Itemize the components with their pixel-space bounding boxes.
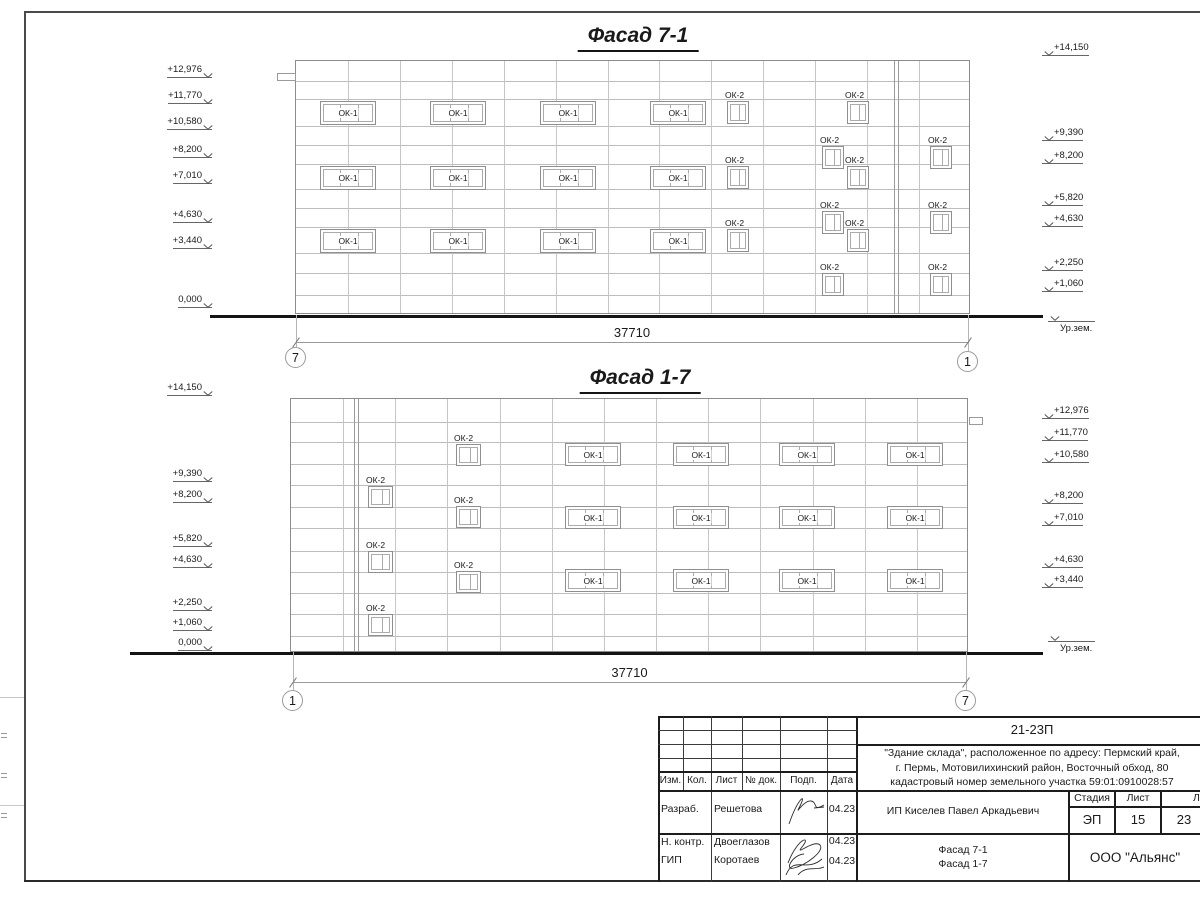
window-ok1: ОК-1	[779, 443, 835, 466]
elevation-mark: +8,200	[1042, 485, 1083, 504]
level-tick	[1044, 582, 1053, 589]
pane-divider	[382, 555, 383, 569]
sheet-name: Фасад 7-1 Фасад 1-7	[858, 843, 1068, 881]
elevation-mark: +8,200	[173, 484, 212, 503]
level-tick	[203, 497, 212, 504]
margin-divider	[0, 697, 24, 698]
window-label: ОК-2	[845, 218, 864, 228]
window-label: ОК-2	[725, 155, 744, 165]
elevation-mark: +9,390	[1042, 122, 1083, 141]
panel-joint-h	[296, 145, 969, 146]
window-ok2: ОК-2	[727, 229, 749, 252]
window-label: ОК-2	[845, 155, 864, 165]
level-tick	[203, 302, 212, 309]
elevation-mark: +3,440	[1042, 569, 1083, 588]
parapet-tab	[277, 73, 296, 81]
level-tick-stroke	[1048, 583, 1053, 588]
margin-mark	[1, 813, 7, 814]
window-ok2: ОК-2	[368, 551, 393, 573]
window-label: ОК-2	[820, 200, 839, 210]
elevation-mark: +7,010	[173, 165, 212, 184]
elevation-mark: +10,580	[1042, 444, 1089, 463]
signer-name: Решетова	[714, 803, 778, 819]
level-tick	[1044, 413, 1053, 420]
level-tick-stroke	[1048, 436, 1053, 441]
window-label: ОК-1	[557, 236, 578, 246]
ground-level-label: Ур.зем.	[1048, 318, 1095, 336]
window-ok1: ОК-1	[430, 101, 486, 125]
panel-joint-h	[296, 253, 969, 254]
level-tick-stroke	[207, 477, 212, 482]
level-tick-stroke	[1054, 636, 1059, 641]
panel-joint-h	[296, 126, 969, 127]
window-label: ОК-1	[690, 513, 711, 523]
window-ok1: ОК-1	[673, 443, 729, 466]
level-tick-stroke	[1048, 266, 1053, 271]
level-tick-stroke	[1048, 499, 1053, 504]
level-tick	[203, 72, 212, 79]
window-ok1: ОК-1	[540, 229, 596, 253]
window-label: ОК-1	[557, 108, 578, 118]
level-tick	[203, 98, 212, 105]
window-ok1: ОК-1	[565, 506, 621, 529]
level-tick	[1044, 498, 1053, 505]
col-data: Дата	[827, 772, 857, 790]
axis-leader	[968, 315, 969, 351]
pane-divider	[834, 215, 835, 230]
level-tick-stroke	[207, 646, 212, 651]
window-label: ОК-2	[928, 135, 947, 145]
level-tick-stroke	[207, 606, 212, 611]
stage-value: ЭП	[1070, 806, 1114, 833]
window-label: ОК-2	[454, 495, 473, 505]
elevation-mark: +4,630	[1042, 208, 1083, 227]
ground-line	[210, 315, 1043, 318]
window-ok2: ОК-2	[727, 101, 749, 124]
elevation-mark: 0,000	[178, 632, 212, 651]
panel-joint-v	[500, 399, 501, 651]
elevation-mark: +11,770	[168, 85, 212, 104]
pane-divider	[942, 277, 943, 292]
level-tick-stroke	[1048, 458, 1053, 463]
level-tick-stroke	[207, 153, 212, 158]
window-label: ОК-1	[904, 576, 925, 586]
window-ok1: ОК-1	[320, 229, 376, 253]
axis-bubble: 1	[957, 351, 978, 372]
level-tick	[203, 390, 212, 397]
signer-role: ГИП	[661, 854, 713, 868]
axis-bubble: 7	[285, 347, 306, 368]
window-label: ОК-1	[667, 108, 688, 118]
level-tick	[1044, 562, 1053, 569]
axis-leader	[293, 652, 294, 690]
level-tick	[1044, 200, 1053, 207]
company: ООО "Альянс"	[1070, 835, 1200, 880]
window-ok1: ОК-1	[887, 506, 943, 529]
window-label: ОК-2	[845, 90, 864, 100]
level-tick-stroke	[1048, 521, 1053, 526]
window-label: ОК-1	[337, 236, 358, 246]
window-label: ОК-2	[454, 433, 473, 443]
pane-divider	[470, 448, 471, 462]
panel-joint-h	[296, 99, 969, 100]
window-ok1: ОК-1	[673, 506, 729, 529]
window-label: ОК-1	[904, 450, 925, 460]
pane-divider	[942, 150, 943, 165]
window-ok1: ОК-1	[887, 443, 943, 466]
panel-joint-v	[763, 61, 764, 313]
level-tick	[1044, 520, 1053, 527]
window-label: ОК-1	[796, 576, 817, 586]
col-izm: Изм.	[658, 772, 683, 790]
col-ndok: № док.	[742, 772, 780, 790]
panel-joint-v	[656, 399, 657, 651]
window-label: ОК-2	[820, 135, 839, 145]
window-ok1: ОК-1	[320, 101, 376, 125]
axis-bubble: 1	[282, 690, 303, 711]
level-tick	[1044, 135, 1053, 142]
elevation-mark: +3,440	[173, 230, 212, 249]
signature-razrab	[783, 790, 827, 832]
window-label: ОК-1	[337, 173, 358, 183]
elevation-mark: +7,010	[1042, 507, 1083, 526]
level-tick-stroke	[207, 125, 212, 130]
level-tick-stroke	[207, 563, 212, 568]
window-ok1: ОК-1	[650, 101, 706, 125]
level-tick	[203, 645, 212, 652]
level-tick-stroke	[207, 498, 212, 503]
frame-left	[24, 11, 26, 882]
panel-joint-v	[711, 61, 712, 313]
window-ok2: ОК-2	[930, 211, 952, 234]
level-tick-stroke	[1048, 51, 1053, 56]
window-ok1: ОК-1	[779, 506, 835, 529]
elevation-mark: +14,150	[1042, 37, 1089, 56]
level-tick	[203, 243, 212, 250]
pane-divider	[834, 150, 835, 165]
window-label: ОК-2	[366, 475, 385, 485]
pane-divider	[739, 233, 740, 248]
facade-building: ОК-1ОК-1ОК-1ОК-1ОК-1ОК-1ОК-1ОК-1ОК-1ОК-1…	[290, 398, 968, 652]
window-label: ОК-1	[447, 173, 468, 183]
window-label: ОК-2	[928, 262, 947, 272]
signature-nkontr-gip	[778, 831, 828, 879]
window-ok2: ОК-2	[847, 229, 869, 252]
col-kol: Кол.	[683, 772, 711, 790]
level-tick	[1044, 265, 1053, 272]
window-label: ОК-2	[725, 218, 744, 228]
sheet-number: 15	[1116, 806, 1160, 833]
level-tick-stroke	[207, 542, 212, 547]
wall-joint-v	[354, 399, 355, 651]
signer-name: Двоеглазов	[714, 836, 780, 850]
window-label: ОК-1	[447, 108, 468, 118]
pane-divider	[470, 575, 471, 589]
ground-level-label: Ур.зем.	[1048, 638, 1095, 656]
project-description: "Здание склада", расположенное по адресу…	[860, 746, 1200, 790]
window-label: ОК-2	[366, 540, 385, 550]
level-tick-stroke	[207, 626, 212, 631]
ground-level-text: Ур.зем.	[1048, 641, 1095, 654]
elevation-mark: +9,390	[173, 463, 212, 482]
panel-joint-h	[296, 81, 969, 82]
level-tick	[1050, 315, 1059, 322]
elevation-mark: +4,630	[173, 549, 212, 568]
window-label: ОК-2	[454, 560, 473, 570]
stage-col: Стадия	[1070, 790, 1114, 806]
level-tick-stroke	[1048, 287, 1053, 292]
elevation-mark: +12,976	[1042, 400, 1089, 419]
window-ok1: ОК-1	[320, 166, 376, 190]
elevation-mark: +5,820	[173, 528, 212, 547]
level-tick	[203, 541, 212, 548]
window-label: ОК-1	[667, 173, 688, 183]
panel-joint-h	[296, 295, 969, 296]
col-podp: Подп.	[780, 772, 827, 790]
level-tick	[203, 562, 212, 569]
col-list: Лист	[711, 772, 742, 790]
window-ok1: ОК-1	[650, 229, 706, 253]
signer-role: Н. контр.	[661, 836, 713, 850]
panel-joint-h	[296, 227, 969, 228]
titleblock-divider-h	[658, 758, 857, 759]
window-ok1: ОК-1	[673, 569, 729, 592]
level-tick-stroke	[207, 99, 212, 104]
facade-building: ОК-1ОК-1ОК-1ОК-1ОК-1ОК-1ОК-1ОК-1ОК-1ОК-1…	[295, 60, 970, 314]
panel-joint-v	[608, 61, 609, 313]
level-tick	[1044, 158, 1053, 165]
window-ok2: ОК-2	[368, 614, 393, 636]
level-tick	[203, 625, 212, 632]
window-ok1: ОК-1	[565, 443, 621, 466]
margin-divider	[0, 805, 24, 806]
stage-col: Лист	[1116, 790, 1160, 806]
level-tick-stroke	[1048, 159, 1053, 164]
stage-col: Листов	[1162, 790, 1200, 806]
pane-divider	[942, 215, 943, 230]
pane-divider	[859, 170, 860, 185]
margin-mark	[1, 777, 7, 778]
window-ok2: ОК-2	[847, 101, 869, 124]
dimension-label: 37710	[610, 325, 654, 340]
elevation-mark: +2,250	[173, 592, 212, 611]
panel-joint-h	[296, 208, 969, 209]
level-tick-stroke	[1054, 316, 1059, 321]
elevation-mark: +11,770	[1042, 422, 1088, 441]
sheets-total: 23	[1162, 806, 1200, 833]
wall-joint-v	[894, 61, 895, 313]
signer-date: 04.23	[827, 803, 857, 819]
elevation-mark: +1,060	[1042, 273, 1083, 292]
elevation-mark: +1,060	[173, 612, 212, 631]
level-tick	[203, 152, 212, 159]
pane-divider	[739, 170, 740, 185]
ground-line	[130, 652, 1043, 655]
panel-joint-v	[760, 399, 761, 651]
window-ok2: ОК-2	[822, 146, 844, 169]
window-ok2: ОК-2	[368, 486, 393, 508]
level-tick	[1044, 286, 1053, 293]
axis-bubble: 7	[955, 690, 976, 711]
window-ok1: ОК-1	[779, 569, 835, 592]
window-ok1: ОК-1	[887, 569, 943, 592]
window-ok2: ОК-2	[847, 166, 869, 189]
level-tick-stroke	[1048, 222, 1053, 227]
level-tick-stroke	[207, 244, 212, 249]
panel-joint-v	[447, 399, 448, 651]
window-label: ОК-1	[796, 450, 817, 460]
dimension-line	[293, 682, 966, 683]
level-tick	[203, 217, 212, 224]
elevation-mark: +14,150	[167, 377, 212, 396]
panel-joint-v	[504, 61, 505, 313]
level-tick	[1044, 457, 1053, 464]
frame-top	[24, 11, 1200, 13]
window-ok2: ОК-2	[930, 273, 952, 296]
window-ok2: ОК-2	[456, 506, 481, 528]
dimension-line	[296, 342, 968, 343]
pane-divider	[470, 510, 471, 524]
elevation-mark: +10,580	[167, 111, 212, 130]
window-label: ОК-2	[725, 90, 744, 100]
level-tick	[1044, 221, 1053, 228]
level-tick-stroke	[207, 218, 212, 223]
window-ok2: ОК-2	[456, 444, 481, 466]
titleblock-divider-h	[658, 730, 857, 731]
window-label: ОК-1	[796, 513, 817, 523]
elevation-mark: 0,000	[178, 289, 212, 308]
window-ok2: ОК-2	[727, 166, 749, 189]
level-tick	[1050, 635, 1059, 642]
pane-divider	[382, 618, 383, 632]
margin-mark	[1, 817, 7, 818]
level-tick	[203, 124, 212, 131]
pane-divider	[859, 105, 860, 120]
signer-date: 04.23	[827, 855, 857, 869]
window-ok2: ОК-2	[456, 571, 481, 593]
pane-divider	[739, 105, 740, 120]
level-tick-stroke	[207, 73, 212, 78]
window-ok2: ОК-2	[822, 273, 844, 296]
level-tick-stroke	[207, 391, 212, 396]
panel-joint-v	[400, 61, 401, 313]
signer-name: Коротаев	[714, 854, 780, 868]
window-label: ОК-2	[928, 200, 947, 210]
wall-joint-v	[358, 399, 359, 651]
elevation-mark: +8,200	[1042, 145, 1083, 164]
window-label: ОК-2	[820, 262, 839, 272]
window-ok1: ОК-1	[430, 229, 486, 253]
panel-joint-h	[296, 189, 969, 190]
level-tick	[1044, 50, 1053, 57]
window-ok1: ОК-1	[430, 166, 486, 190]
pane-divider	[382, 490, 383, 504]
facade-title: Фасад 7-1	[578, 24, 699, 52]
window-label: ОК-1	[582, 450, 603, 460]
panel-joint-h	[296, 273, 969, 274]
level-tick	[203, 476, 212, 483]
window-ok1: ОК-1	[540, 166, 596, 190]
elevation-mark: +4,630	[1042, 549, 1083, 568]
window-label: ОК-1	[904, 513, 925, 523]
window-label: ОК-1	[557, 173, 578, 183]
parapet-tab	[969, 417, 983, 425]
level-tick-stroke	[1048, 136, 1053, 141]
window-label: ОК-1	[690, 576, 711, 586]
dimension-label: 37710	[607, 665, 651, 680]
elevation-mark: +12,976	[167, 59, 212, 78]
elevation-mark: +8,200	[173, 139, 212, 158]
doc-number: 21-23П	[858, 716, 1200, 744]
window-ok1: ОК-1	[540, 101, 596, 125]
window-label: ОК-2	[366, 603, 385, 613]
signer-role: Разраб.	[661, 803, 711, 819]
ground-level-text: Ур.зем.	[1048, 321, 1095, 334]
window-label: ОК-1	[667, 236, 688, 246]
elevation-mark: +2,250	[1042, 252, 1083, 271]
wall-joint-v	[898, 61, 899, 313]
panel-joint-v	[395, 399, 396, 651]
facade-title: Фасад 1-7	[580, 366, 701, 394]
panel-joint-v	[343, 399, 344, 651]
margin-mark	[1, 737, 7, 738]
window-ok1: ОК-1	[650, 166, 706, 190]
window-label: ОК-1	[447, 236, 468, 246]
level-tick-stroke	[1048, 563, 1053, 568]
window-label: ОК-1	[582, 513, 603, 523]
margin-mark	[1, 733, 7, 734]
signer-date: 04.23	[827, 835, 857, 849]
axis-leader	[966, 652, 967, 690]
elevation-mark: +4,630	[173, 204, 212, 223]
panel-joint-v	[552, 399, 553, 651]
titleblock-border-left	[658, 716, 660, 882]
window-label: ОК-1	[690, 450, 711, 460]
panel-joint-h	[296, 164, 969, 165]
level-tick-stroke	[1048, 201, 1053, 206]
panel-joint-v	[919, 61, 920, 313]
pane-divider	[859, 233, 860, 248]
window-label: ОК-1	[582, 576, 603, 586]
level-tick-stroke	[207, 303, 212, 308]
customer: ИП Киселев Павел Аркадьевич	[858, 790, 1068, 833]
pane-divider	[834, 277, 835, 292]
panel-joint-v	[815, 61, 816, 313]
window-ok1: ОК-1	[565, 569, 621, 592]
window-ok2: ОК-2	[930, 146, 952, 169]
titleblock-divider-h	[658, 744, 857, 745]
window-ok2: ОК-2	[822, 211, 844, 234]
level-tick	[1044, 435, 1053, 442]
elevation-mark: +5,820	[1042, 187, 1083, 206]
level-tick	[203, 178, 212, 185]
drawing-sheet: 21-23П "Здание склада", расположенное по…	[0, 0, 1200, 900]
panel-joint-v	[865, 399, 866, 651]
window-label: ОК-1	[337, 108, 358, 118]
level-tick-stroke	[207, 179, 212, 184]
margin-mark	[1, 773, 7, 774]
level-tick-stroke	[1048, 414, 1053, 419]
level-tick	[203, 605, 212, 612]
